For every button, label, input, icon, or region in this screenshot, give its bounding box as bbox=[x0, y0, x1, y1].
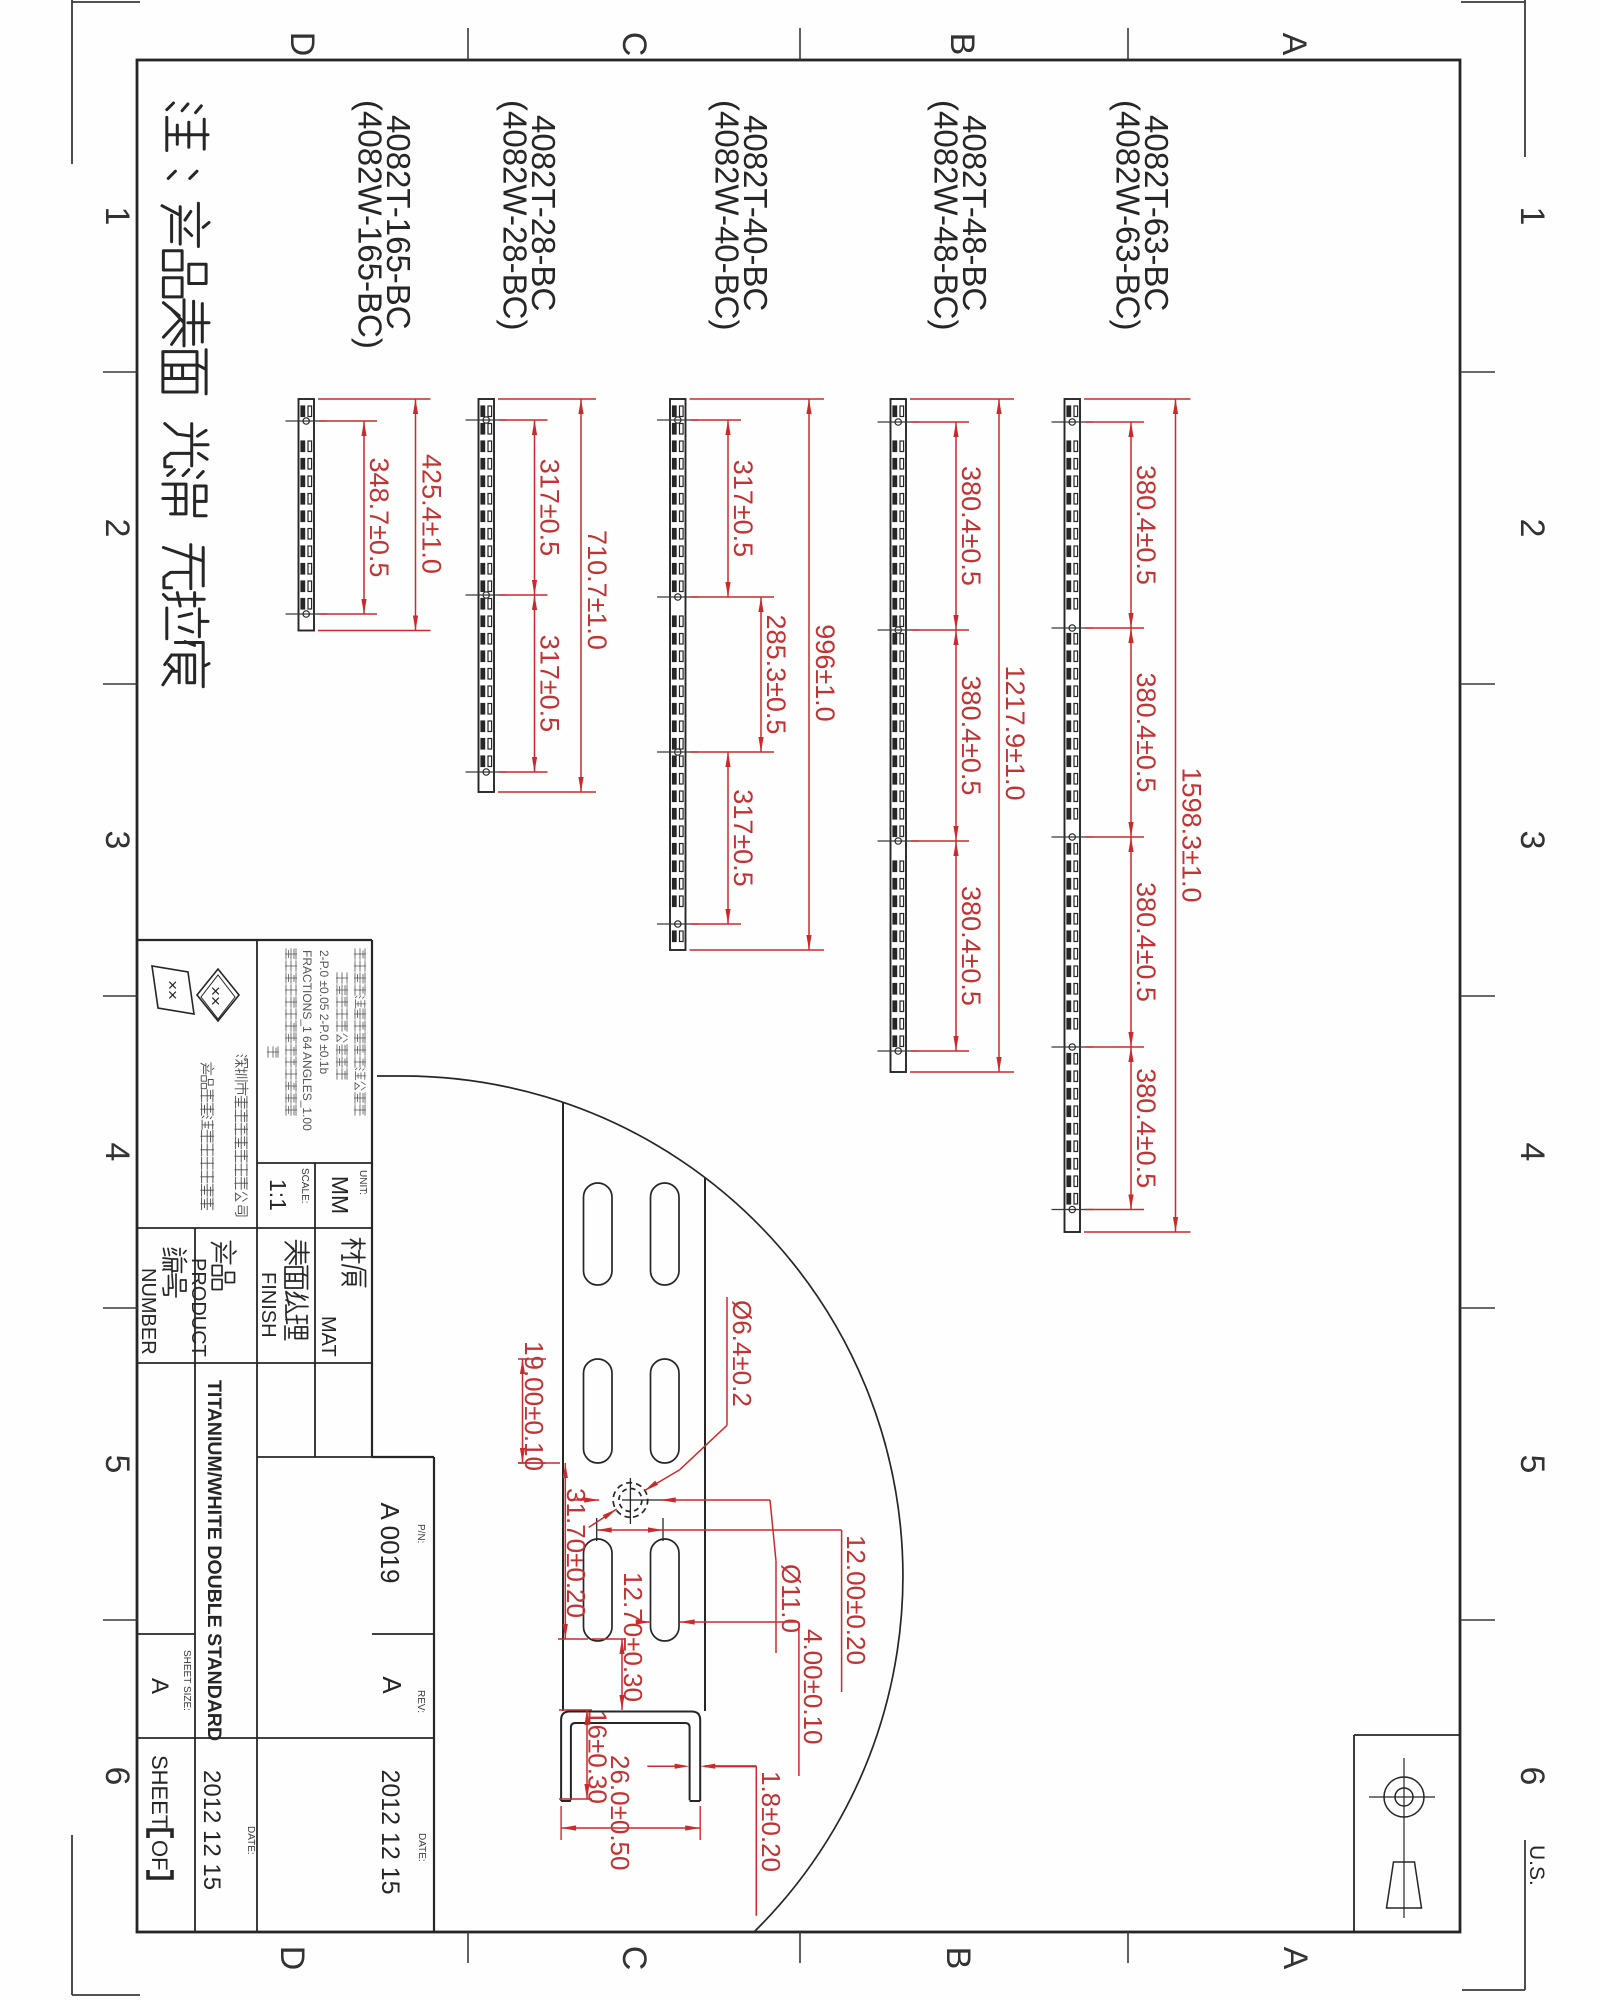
svg-text:SHEET SIZE:: SHEET SIZE: bbox=[181, 1650, 192, 1711]
svg-text:2: 2 bbox=[1513, 519, 1551, 538]
svg-text:A: A bbox=[1276, 1947, 1314, 1970]
svg-text:1598.3±1.0: 1598.3±1.0 bbox=[1177, 768, 1207, 903]
svg-text:380.4±0.5: 380.4±0.5 bbox=[956, 466, 986, 586]
svg-text:B: B bbox=[943, 33, 981, 56]
svg-text:UNIT:: UNIT: bbox=[357, 1170, 368, 1195]
svg-text:380.4±0.5: 380.4±0.5 bbox=[1131, 673, 1161, 793]
svg-text:5: 5 bbox=[98, 1455, 136, 1474]
svg-text:D: D bbox=[273, 1946, 311, 1971]
svg-text:710.7±1.0: 710.7±1.0 bbox=[582, 530, 612, 650]
svg-text:317±0.5: 317±0.5 bbox=[535, 459, 565, 556]
svg-text:2012 12 15: 2012 12 15 bbox=[376, 1769, 404, 1894]
svg-text:380.4±0.5: 380.4±0.5 bbox=[956, 676, 986, 796]
svg-text:MAT: MAT bbox=[317, 1316, 339, 1357]
svg-text:2: 2 bbox=[98, 519, 136, 538]
svg-text:DATE:: DATE: bbox=[416, 1833, 427, 1862]
svg-text:D: D bbox=[283, 32, 321, 57]
svg-text:3: 3 bbox=[98, 831, 136, 850]
svg-text:P/N:: P/N: bbox=[415, 1524, 426, 1543]
svg-text:380.4±0.5: 380.4±0.5 bbox=[1131, 465, 1161, 585]
svg-text:12.70±0.30: 12.70±0.30 bbox=[618, 1572, 648, 1702]
svg-text:(4082W-48-BC): (4082W-48-BC) bbox=[928, 100, 965, 330]
svg-text:3: 3 bbox=[1513, 831, 1551, 850]
svg-text:FINISH: FINISH bbox=[257, 1272, 279, 1338]
svg-text:2-P.0 ±0.05 2-P.0 ±0.1b: 2-P.0 ±0.05 2-P.0 ±0.1b bbox=[317, 950, 331, 1074]
svg-text:C: C bbox=[615, 1946, 653, 1971]
svg-text:××: ×× bbox=[163, 980, 182, 1000]
svg-text:4: 4 bbox=[1513, 1143, 1551, 1162]
svg-text:6: 6 bbox=[98, 1767, 136, 1786]
svg-text:SHEET: SHEET bbox=[147, 1755, 172, 1828]
svg-text:(4082W-28-BC): (4082W-28-BC) bbox=[497, 100, 534, 330]
svg-text:(4082W-40-BC): (4082W-40-BC) bbox=[709, 100, 746, 330]
svg-text:MM: MM bbox=[327, 1176, 353, 1214]
svg-text:(4082W-165-BC): (4082W-165-BC) bbox=[352, 100, 389, 349]
svg-text:6: 6 bbox=[1513, 1767, 1551, 1786]
svg-text:285.3±0.5: 285.3±0.5 bbox=[761, 615, 791, 735]
svg-text:31.70±0.20: 31.70±0.20 bbox=[561, 1488, 591, 1618]
svg-text:2012 12 15: 2012 12 15 bbox=[198, 1770, 225, 1890]
svg-text:A: A bbox=[146, 1678, 173, 1694]
svg-text:317±0.5: 317±0.5 bbox=[728, 789, 758, 886]
svg-text:996±1.0: 996±1.0 bbox=[810, 624, 840, 721]
svg-text:OF: OF bbox=[147, 1840, 172, 1871]
svg-text:A: A bbox=[377, 1676, 407, 1694]
svg-text:317±0.5: 317±0.5 bbox=[728, 460, 758, 557]
svg-text:26.0±0.50: 26.0±0.50 bbox=[605, 1755, 635, 1870]
svg-text:Ø11.0: Ø11.0 bbox=[776, 1564, 806, 1633]
svg-text:FRACTIONS_1 64 ANGLES_1.00: FRACTIONS_1 64 ANGLES_1.00 bbox=[300, 950, 314, 1131]
svg-text:TITANIUM/WHITE DOUBLE STANDARD: TITANIUM/WHITE DOUBLE STANDARD bbox=[203, 1380, 225, 1741]
svg-text:A 0019: A 0019 bbox=[375, 1503, 405, 1584]
svg-text:DATE:: DATE: bbox=[245, 1826, 256, 1855]
svg-text:380.4±0.5: 380.4±0.5 bbox=[956, 886, 986, 1006]
svg-text:1: 1 bbox=[1513, 207, 1551, 226]
svg-text:348.7±0.5: 348.7±0.5 bbox=[364, 458, 394, 578]
svg-text:1: 1 bbox=[98, 207, 136, 226]
svg-text:U.S.: U.S. bbox=[1525, 1845, 1548, 1886]
svg-text:××: ×× bbox=[206, 986, 225, 1006]
svg-text:425.4±1.0: 425.4±1.0 bbox=[417, 454, 447, 574]
svg-text:4.00±0.10: 4.00±0.10 bbox=[798, 1629, 828, 1744]
svg-text:B: B bbox=[939, 1947, 977, 1970]
svg-text:REV:: REV: bbox=[415, 1690, 426, 1713]
svg-text:PRODUCT: PRODUCT bbox=[187, 1258, 209, 1357]
svg-text:5: 5 bbox=[1513, 1455, 1551, 1474]
svg-text:1:1: 1:1 bbox=[265, 1179, 291, 1211]
svg-text:380.4±0.5: 380.4±0.5 bbox=[1131, 1068, 1161, 1188]
svg-text:NUMBER: NUMBER bbox=[137, 1268, 159, 1355]
svg-text:1.8±0.20: 1.8±0.20 bbox=[756, 1771, 786, 1872]
svg-text:4: 4 bbox=[98, 1143, 136, 1162]
svg-text:12.00±0.20: 12.00±0.20 bbox=[841, 1535, 871, 1665]
svg-text:Ø6.4±0.2: Ø6.4±0.2 bbox=[727, 1300, 757, 1407]
svg-text:317±0.5: 317±0.5 bbox=[535, 635, 565, 732]
svg-text:(4082W-63-BC): (4082W-63-BC) bbox=[1110, 100, 1147, 330]
svg-text:19.00±0.10: 19.00±0.10 bbox=[519, 1341, 549, 1471]
svg-text:A: A bbox=[1275, 33, 1313, 56]
svg-text:SCALE:: SCALE: bbox=[299, 1168, 310, 1204]
svg-text:1217.9±1.0: 1217.9±1.0 bbox=[1000, 666, 1030, 801]
svg-text:380.4±0.5: 380.4±0.5 bbox=[1131, 882, 1161, 1002]
svg-text:C: C bbox=[615, 32, 653, 57]
